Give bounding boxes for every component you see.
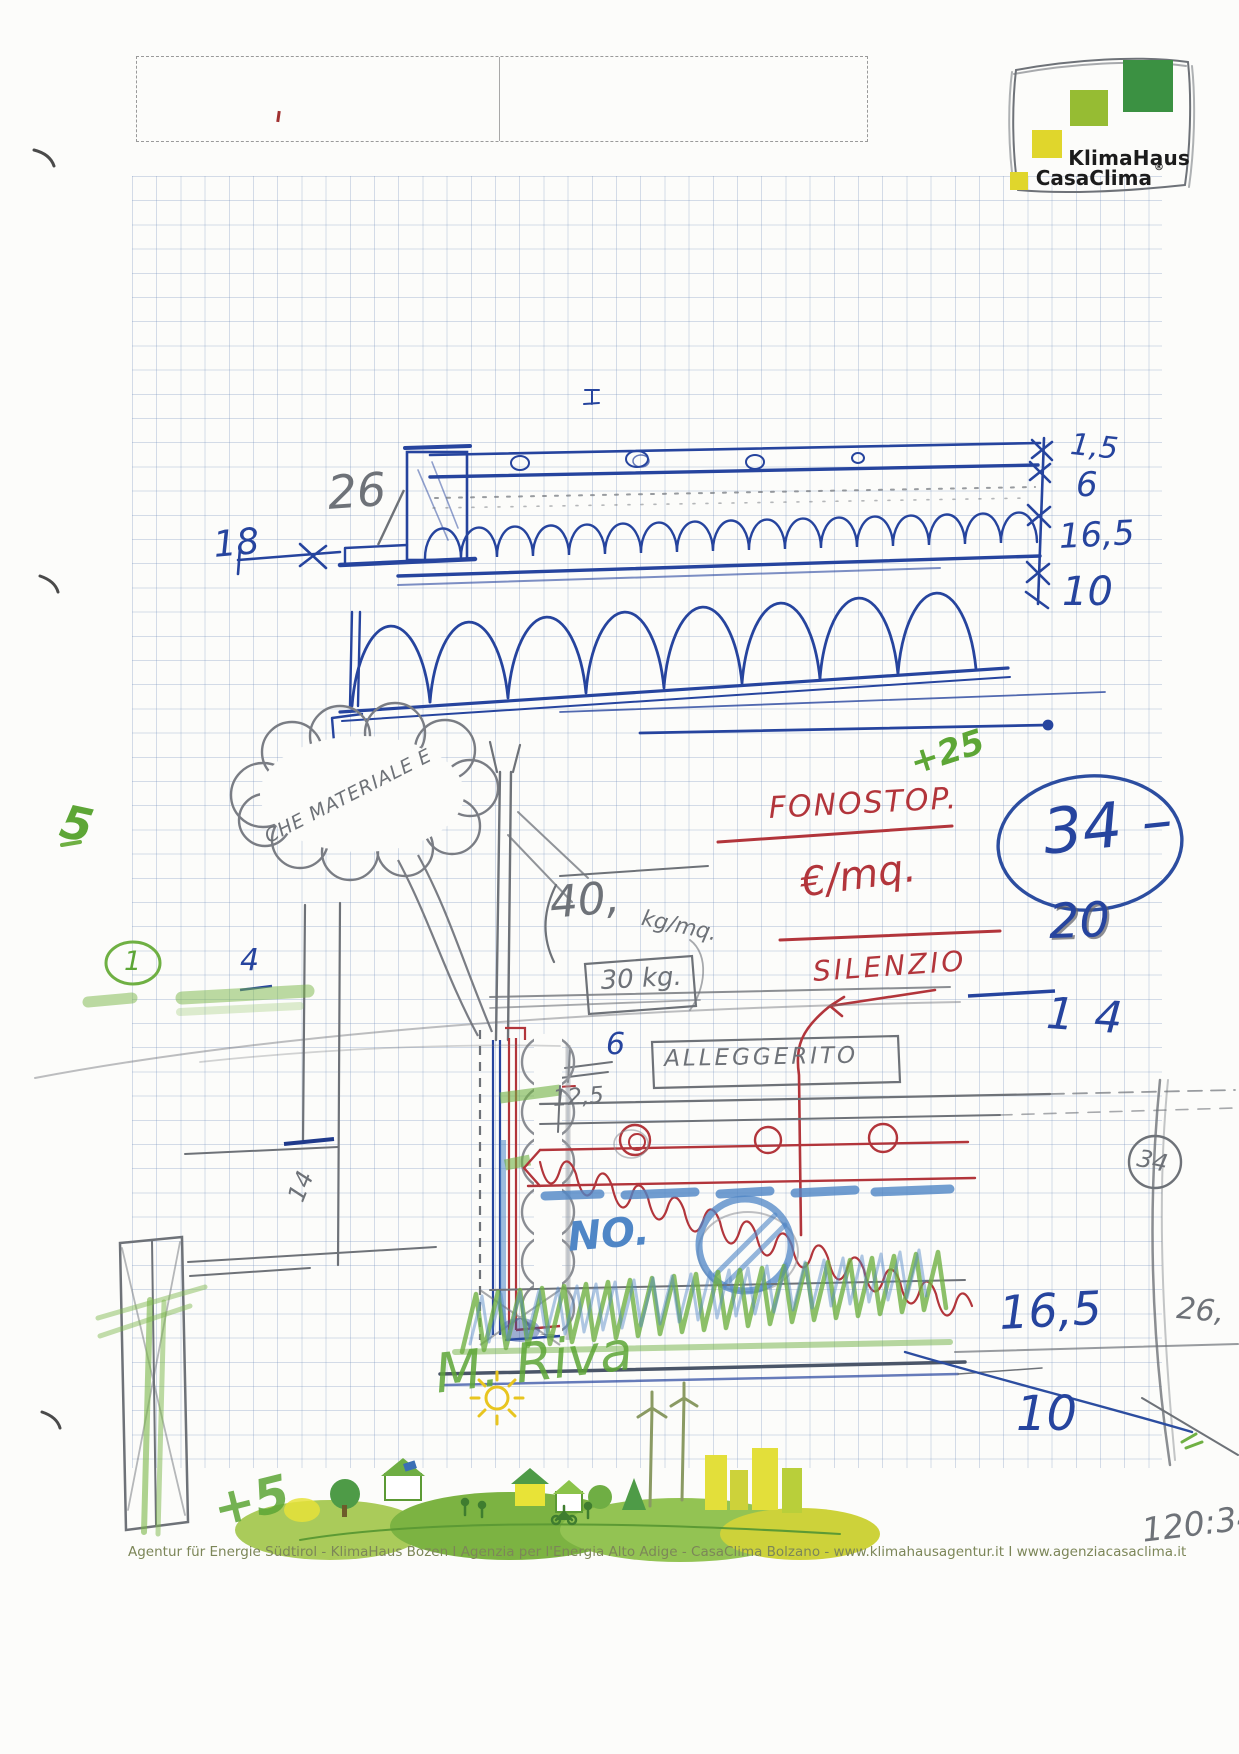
weight-30: 30 kg. xyxy=(600,964,682,994)
screed-dotted-lines xyxy=(433,487,1035,508)
blue-short-line xyxy=(284,1139,334,1144)
weight-40: 40, xyxy=(548,876,622,926)
floor-section-sketch xyxy=(340,390,1040,585)
footer-illustration xyxy=(235,1372,880,1562)
letterhead-footer: Agentur für Energie Südtirol - KlimaHaus… xyxy=(128,1544,1186,1560)
blue-dashed-layer xyxy=(545,1189,950,1196)
dim-10-low: 10 xyxy=(1016,1390,1077,1438)
dim-26-margin: 26, xyxy=(1175,1294,1225,1328)
dim-26: 26 xyxy=(326,466,388,516)
hole-punches xyxy=(34,150,60,1428)
circled-margin-34: 34 xyxy=(1135,1146,1170,1176)
alleggerito-note: ALLEGGERITO xyxy=(664,1045,858,1071)
dimension-marks-upper xyxy=(1026,438,1052,608)
circled-total-34: 34 – xyxy=(1040,788,1175,863)
scanned-sketch-sheet: KlimaHaus CasaClima ® xyxy=(0,0,1239,1754)
dim-1-5: 1,5 xyxy=(1069,430,1120,465)
dim-16-5-low: 16,5 xyxy=(998,1285,1103,1336)
dim-10-top: 10 xyxy=(1062,572,1113,612)
num-20: 20 xyxy=(1048,896,1111,946)
num-14: 14 xyxy=(1045,992,1144,1043)
dim-12-5: 12,5 xyxy=(552,1084,605,1111)
num-4-left: 4 xyxy=(240,946,259,976)
dim-16-5-top: 16,5 xyxy=(1058,516,1135,554)
circled-1-note: 1 xyxy=(124,948,141,975)
dim-18: 18 xyxy=(212,524,261,564)
no-note: NO. xyxy=(566,1211,651,1258)
blue-tick-line xyxy=(968,991,1055,996)
dim-6-top: 6 xyxy=(1076,468,1098,502)
vault-arches xyxy=(332,593,1105,776)
dim-6-mid: 6 xyxy=(606,1030,625,1060)
